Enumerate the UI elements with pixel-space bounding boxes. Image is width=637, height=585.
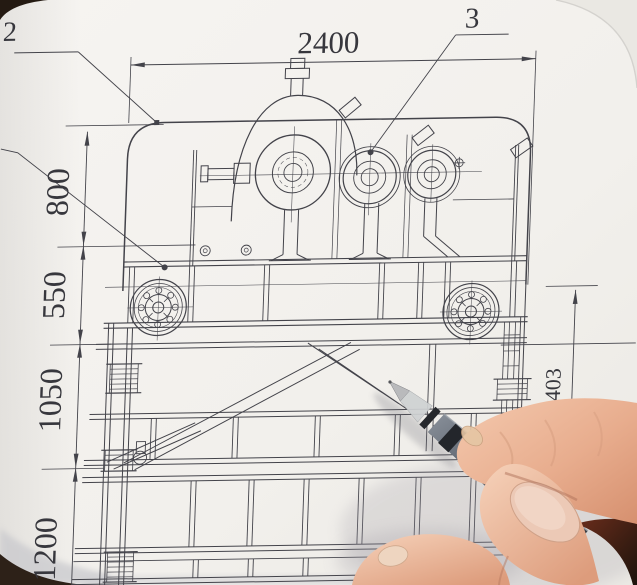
pen-tip-point	[388, 380, 391, 383]
callout-2-label: 2	[2, 17, 17, 48]
dim-label-1050: 1050	[31, 368, 69, 433]
scene-svg: 2400 3 2	[0, 0, 637, 585]
dim-label-2400: 2400	[297, 24, 360, 60]
dim-label-800: 800	[39, 168, 77, 217]
dim-label-550: 550	[35, 271, 73, 320]
photo-of-engineering-drawing: 2400 3 2	[0, 0, 637, 585]
callout-3-label: 3	[464, 3, 480, 35]
dim-label-1200: 1200	[26, 517, 64, 582]
